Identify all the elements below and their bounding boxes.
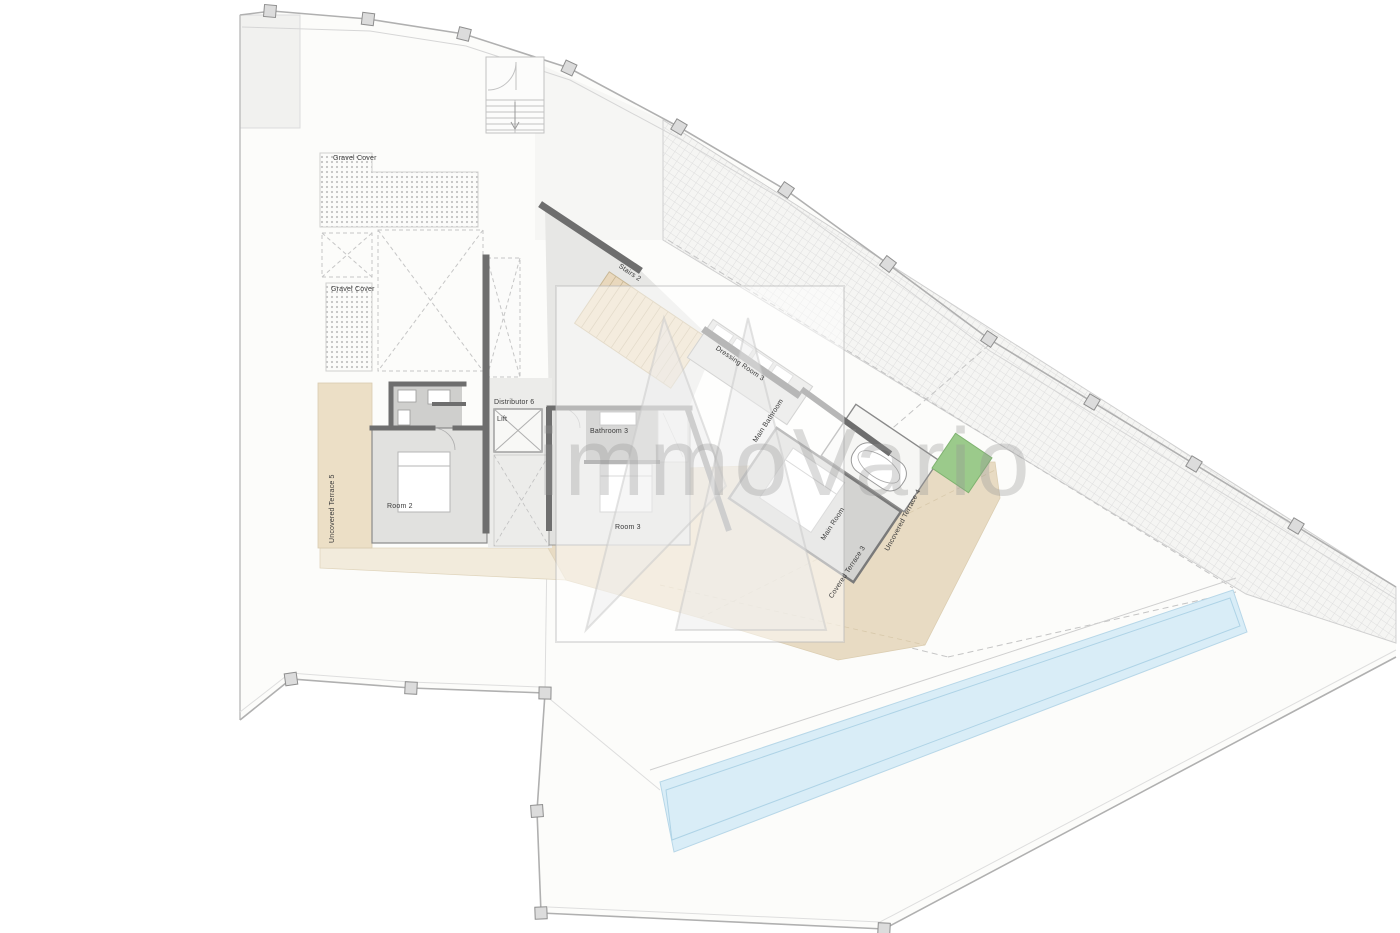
entry-stairs-unit — [486, 57, 544, 133]
label-room-2: Room 2 — [387, 503, 413, 510]
floor-plan-canvas — [0, 0, 1400, 933]
floor-plan-page: immoVario Gravel Cover Gravel Cover Stai… — [0, 0, 1400, 933]
label-gravel-cover-left: Gravel Cover — [331, 286, 375, 293]
label-uncovered-terrace-5: Uncovered Terrace 5 — [329, 474, 336, 543]
label-gravel-cover-top: Gravel Cover — [333, 155, 377, 162]
label-room-3: Room 3 — [615, 524, 641, 531]
label-lift: Lift — [497, 416, 507, 423]
watermark-logo — [556, 286, 844, 642]
label-distributor-6: Distributor 6 — [494, 399, 534, 406]
label-bathroom-3: Bathroom 3 — [590, 428, 628, 435]
